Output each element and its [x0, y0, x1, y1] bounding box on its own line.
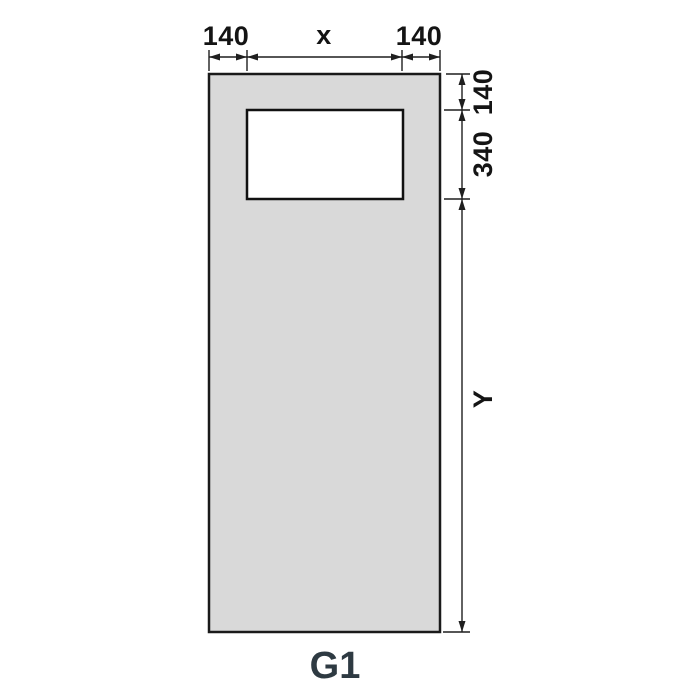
- arrowhead-down: [459, 621, 466, 632]
- top-dimension-chain: 140 x 140: [203, 20, 443, 71]
- arrowhead-up: [459, 199, 466, 210]
- arrowhead-down: [459, 188, 466, 199]
- dim-label-top-center: x: [316, 20, 332, 50]
- arrowhead-right: [391, 54, 402, 61]
- arrowhead-down: [459, 99, 466, 110]
- drawing-title: G1: [310, 645, 361, 687]
- arrowhead-left: [247, 54, 258, 61]
- window-cutout: [247, 110, 403, 199]
- arrowhead-up: [459, 74, 466, 85]
- arrowhead-up: [459, 110, 466, 121]
- right-dimension-chain: 140 340 Y: [443, 69, 498, 632]
- dim-label-right-top: 140: [468, 69, 498, 116]
- dim-label-right-middle: 340: [468, 131, 498, 178]
- dim-label-right-bottom: Y: [468, 390, 498, 409]
- dim-label-top-right: 140: [396, 21, 443, 51]
- arrowhead-right: [429, 54, 440, 61]
- panel-dimension-drawing: 140 x 140 140 340 Y G1: [0, 0, 700, 700]
- arrowhead-left: [209, 54, 220, 61]
- technical-drawing-page: 140 x 140 140 340 Y G1: [0, 0, 700, 700]
- arrowhead-left: [402, 54, 413, 61]
- arrowhead-right: [236, 54, 247, 61]
- dim-label-top-left: 140: [203, 21, 250, 51]
